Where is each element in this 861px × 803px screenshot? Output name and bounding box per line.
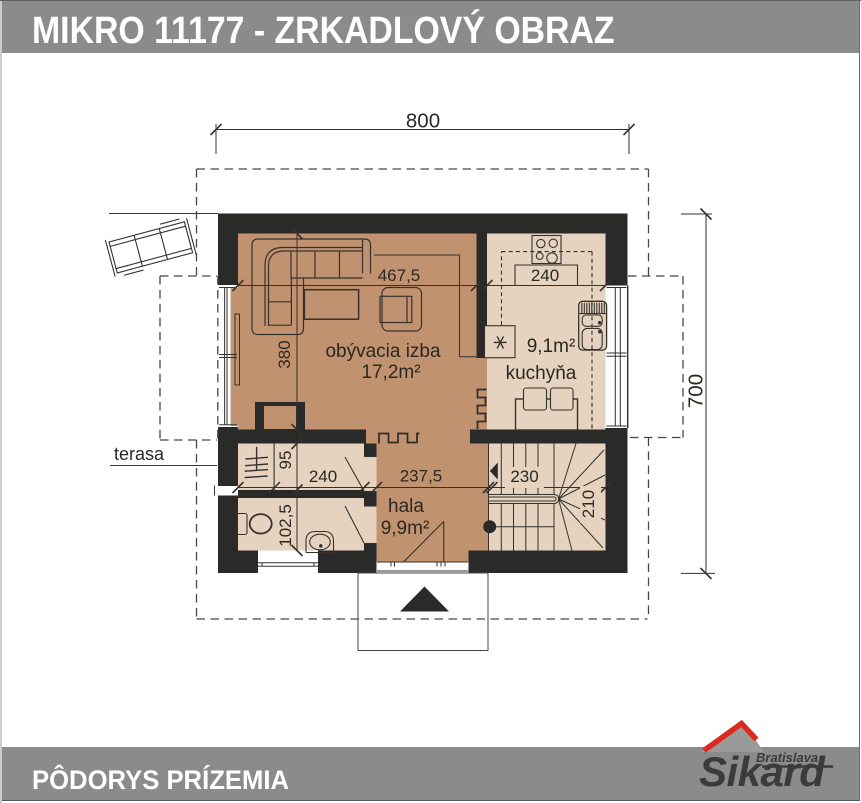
svg-text:Bratislava: Bratislava	[756, 750, 818, 765]
